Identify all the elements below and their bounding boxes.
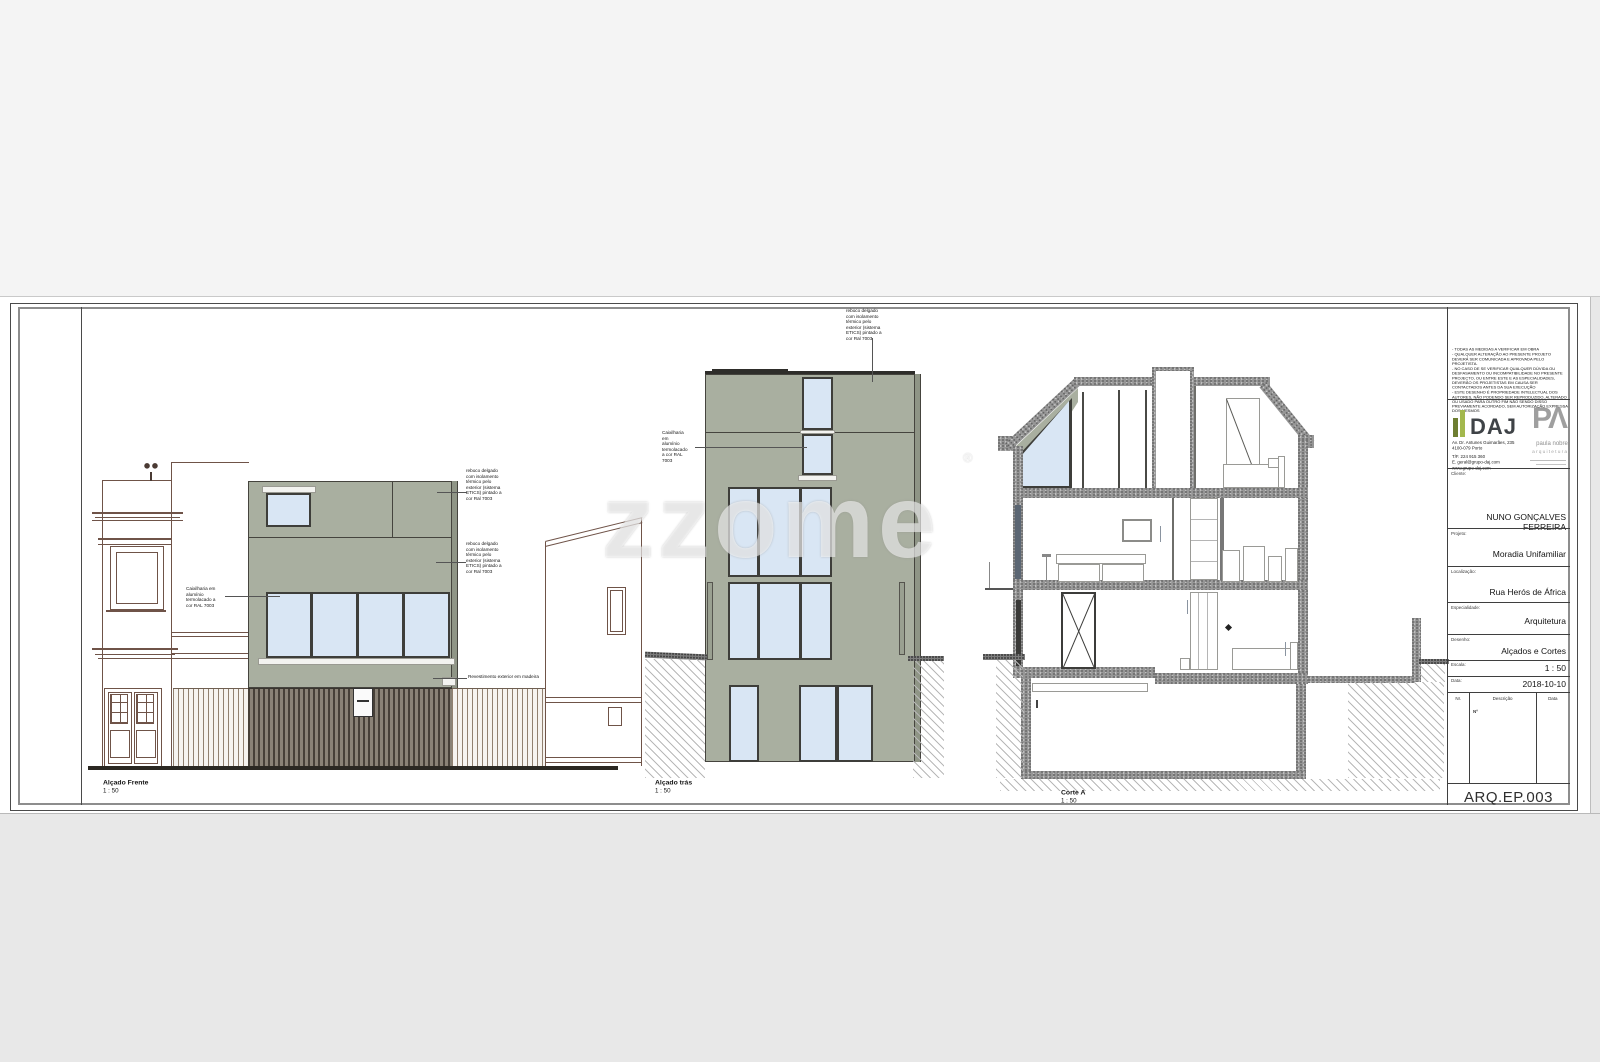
rev-header-descricao: Descrição	[1469, 696, 1536, 701]
floor1-floor-lamp-shade	[1042, 554, 1051, 557]
parapet-ornament-stem	[150, 472, 152, 481]
floor1-sofa-seat-2	[1102, 564, 1144, 582]
localizacao-value: Rua Herós de África	[1450, 587, 1566, 597]
rev-header-nr: Nr.	[1447, 696, 1469, 701]
rear-ground-hatch-right	[913, 661, 944, 778]
projeto-value: Moradia Unifamiliar	[1450, 549, 1566, 559]
neighbor-cornice-1a	[92, 512, 183, 514]
rev-entry: Nº	[1473, 709, 1478, 714]
neighbor-left-wall-line	[102, 480, 103, 766]
section-basement-room	[1031, 683, 1296, 771]
floor1-closet-shelf-3	[1191, 561, 1217, 562]
row-border-projeto	[1447, 528, 1570, 529]
background-right-band	[1590, 297, 1600, 813]
note-line: - TODAS AS MEDIDAS A VERIFICAR EM OBRA	[1452, 347, 1568, 352]
watermark-logo: zzome	[602, 470, 940, 574]
leader-reboco-front-2	[436, 562, 466, 563]
floor1-sofa-back	[1056, 554, 1146, 564]
leader-madeira-front	[433, 678, 467, 679]
neighbor-right-wall-line	[545, 542, 546, 766]
section-ground-hatch-right	[1419, 664, 1445, 682]
front-glazing-mullion-3	[402, 594, 405, 656]
attic-glazing-mullion-2	[1118, 390, 1120, 488]
cliente-value: NUNO GONÇALVES FERREIRA	[1450, 512, 1566, 532]
section-shaft-interior	[1156, 368, 1190, 488]
sheet-margin-line	[81, 307, 82, 805]
floor1-stair-partition	[1172, 498, 1174, 580]
leader-caixilharia-rear	[695, 447, 807, 448]
desenho-value: Alçados e Cortes	[1450, 646, 1566, 656]
sheetnumber-top-border	[1447, 783, 1570, 784]
rev-table-top-border	[1447, 692, 1570, 693]
rear-caption-title: Alçado trás	[655, 779, 692, 786]
section-shaft-cap	[1152, 367, 1194, 371]
attic-glazing-mullion-1	[1082, 392, 1084, 488]
neighbor-right-window-2	[608, 707, 622, 726]
dim-tick-2	[1187, 600, 1188, 614]
section-slab-ground-b	[1155, 673, 1308, 684]
escala-value: 1 : 50	[1450, 663, 1566, 673]
note-line: - NO CASO DE SE VERIFICAR QUALQUER DÚVID…	[1452, 367, 1568, 390]
section-caption-title: Corte A	[1061, 789, 1085, 796]
rear-band2-mullion-1	[757, 584, 760, 658]
front-caption-title: Alçado Frente	[103, 779, 148, 786]
annotation-reboco-front-2: reboco delgado com isolamento térmico pe…	[466, 541, 504, 574]
row-border-cliente	[1447, 468, 1570, 469]
section-bottom-slab	[1021, 771, 1306, 779]
row-border-data	[1447, 676, 1570, 677]
titleblock-separator	[1447, 307, 1448, 805]
neighbor-left-parapet-line	[171, 462, 249, 463]
neighbor-porch-cornice-c	[98, 658, 172, 659]
especialidade-value: Arquitetura	[1450, 616, 1566, 626]
basement-shelf	[1032, 683, 1148, 692]
rev-table-col-line-1	[1469, 692, 1470, 783]
front-glazing-mullion-2	[356, 594, 359, 656]
front-floor-division-line	[249, 537, 452, 538]
floor1-chair-2	[1243, 546, 1265, 582]
annotation-madeira-front: Revestimento exterior em madeira	[468, 674, 572, 680]
ground-cabinet-line-2	[1207, 593, 1208, 669]
localizacao-label: Localização:	[1451, 569, 1476, 574]
rear-ground-hatch-left	[645, 659, 705, 778]
neighbor-cornice-2b	[98, 544, 171, 545]
front-top-division-line	[392, 482, 393, 537]
background-bottom-band	[0, 813, 1600, 1062]
section-caption-scale: 1 : 50	[1061, 798, 1085, 805]
section-slab-attic	[1013, 488, 1308, 498]
floor1-table	[1268, 556, 1282, 582]
rear-band2-mullion-2	[799, 584, 802, 658]
daj-logo-bar-light	[1460, 410, 1465, 437]
attic-partition	[1194, 386, 1196, 488]
neighbor-cornice-1c	[92, 520, 183, 521]
floor1-closet	[1190, 498, 1218, 580]
drawing-sheet-viewport: Caixilharia em alumínio termolacado a co…	[0, 0, 1600, 1062]
neighbor-right-band-1	[545, 697, 642, 698]
note-line: - QUALQUER ALTERAÇÃO AO PRESENTE PROJETO…	[1452, 352, 1568, 366]
floor1-shelf-unit	[1285, 548, 1298, 582]
neighbor-right-window-1-inner	[610, 590, 623, 632]
projeto-label: Projeto:	[1451, 531, 1466, 536]
front-top-window	[266, 493, 311, 527]
sheet-number: ARQ.EP.003	[1447, 789, 1570, 806]
attic-glazing-mullion-3	[1145, 390, 1147, 488]
rev-header-data: Data	[1536, 696, 1570, 701]
boundary-wall-line-1	[171, 632, 248, 633]
neighbor-right-band-2	[545, 702, 642, 703]
section-left-wall-window	[1015, 505, 1021, 579]
pa-name: paula nobre	[1536, 440, 1568, 447]
leader-reboco-rear	[872, 338, 873, 382]
data-value: 2018-10-10	[1450, 679, 1566, 689]
front-glazing-mullion-1	[310, 594, 313, 656]
neighbor-door-panes-right	[136, 694, 154, 724]
cliente-label: Cliente:	[1451, 471, 1466, 476]
row-border-especialidade	[1447, 602, 1570, 603]
neighbor-window-inner	[116, 552, 158, 604]
row-border-desenho	[1447, 634, 1570, 635]
dim-tick-1	[1160, 526, 1161, 542]
ground-bed	[1232, 648, 1298, 670]
rear-pilaster-left	[707, 582, 713, 660]
basement-wall-tick	[1036, 700, 1038, 708]
neighbor-right-base-1	[545, 757, 642, 758]
rev-table-col-line-2	[1536, 692, 1537, 783]
neighbor-door-panes-left	[110, 694, 128, 724]
section-courtyard-hatch	[1348, 682, 1444, 778]
neighbor-window-sill	[106, 610, 166, 612]
titleblock-logos-divider	[1447, 399, 1570, 400]
pa-logo: PΛ	[1532, 404, 1564, 434]
section-caption: Corte A 1 : 50	[1061, 789, 1085, 805]
attic-bed-headboard	[1278, 456, 1285, 488]
floor1-floor-lamp	[1046, 556, 1047, 582]
front-top-window-lintel	[262, 486, 316, 493]
daj-logo-bar-dark	[1453, 418, 1458, 437]
neighbor-door-panel-left	[110, 730, 130, 758]
neighbor-porch-cornice-b	[95, 654, 175, 655]
floor1-chair-1	[1222, 550, 1240, 582]
ground-cabinet-line-1	[1198, 593, 1199, 669]
row-border-escala	[1447, 660, 1570, 661]
front-elevation-caption: Alçado Frente 1 : 50	[103, 779, 148, 795]
annotation-caixilharia-front: Caixilharia em alumínio termolacado a co…	[186, 586, 216, 608]
floor1-closet-shelf-2	[1191, 540, 1217, 541]
neighbor-door-panel-right	[136, 730, 156, 758]
especialidade-label: Especialidade:	[1451, 605, 1480, 610]
boundary-wall-line-2	[171, 636, 248, 637]
rear-tall-window-upper	[802, 377, 833, 430]
fence-mailbox-slot	[357, 700, 369, 702]
rear-basement-window-2-mullion	[835, 687, 839, 760]
floor1-closet-shelf-1	[1191, 519, 1217, 520]
daj-logo-text: DAJ	[1470, 414, 1517, 440]
watermark-registered-icon: ®	[963, 450, 973, 465]
pa-contact-line-2	[1536, 464, 1566, 465]
rear-glazing-band-2	[728, 582, 832, 660]
section-balcony-post	[989, 562, 990, 588]
dim-tick-3	[1285, 642, 1286, 656]
background-top-band	[0, 0, 1600, 297]
annotation-reboco-front-1: reboco delgado com isolamento térmico pe…	[466, 468, 504, 501]
neighbor-right-base-2	[545, 762, 642, 763]
fence-center-section	[248, 688, 452, 766]
front-facade-side-reveal	[452, 481, 458, 688]
annotation-reboco-rear: reboco delgado com isolamento térmico pe…	[846, 308, 887, 341]
section-balcony-slab-line	[985, 588, 1013, 590]
front-glazing-sill	[258, 658, 455, 665]
pa-subtitle: arquitetura	[1532, 449, 1568, 454]
section-ground-hatch-left	[996, 660, 1023, 778]
fence-mailbox	[353, 688, 373, 717]
floor1-wall-picture	[1122, 519, 1152, 542]
section-shaft-wall-left	[1152, 367, 1156, 488]
rear-roof-edge-thick	[712, 369, 788, 374]
rear-caption-scale: 1 : 50	[655, 788, 692, 795]
boundary-wall-line-4	[171, 658, 248, 659]
section-basement-wall-right	[1296, 683, 1306, 778]
neighbor-left-top-line	[102, 480, 171, 481]
neighbor-cornice-1b	[95, 517, 180, 518]
leader-reboco-front-1	[437, 492, 467, 493]
section-right-wall	[1298, 440, 1308, 683]
pa-contact-line-1	[1530, 460, 1566, 461]
leader-caixilharia-front	[225, 596, 280, 597]
neighbor-left-party-wall	[171, 462, 172, 766]
front-caption-scale: 1 : 50	[103, 788, 148, 795]
ground-bed-headboard	[1290, 642, 1298, 670]
annotation-caixilharia-rear: Caixilharia em alumínio termolacado a co…	[662, 430, 685, 463]
boundary-wall-line-3	[171, 653, 248, 654]
front-ground-line	[88, 766, 618, 770]
row-border-localizacao	[1447, 566, 1570, 567]
ground-bench	[1180, 658, 1190, 670]
neighbor-cornice-2a	[98, 538, 171, 540]
neighbor-porch-cornice-a	[92, 648, 178, 650]
rear-elevation-caption: Alçado trás 1 : 50	[655, 779, 692, 795]
fence-left-section	[173, 688, 248, 766]
desenho-label: Desenho:	[1451, 637, 1470, 642]
ground-cabinet	[1190, 592, 1218, 670]
floor1-sofa-seat-1	[1058, 564, 1100, 582]
fence-right-section	[452, 688, 545, 766]
rear-basement-window-1	[729, 685, 759, 762]
rear-pilaster-right	[899, 582, 905, 655]
